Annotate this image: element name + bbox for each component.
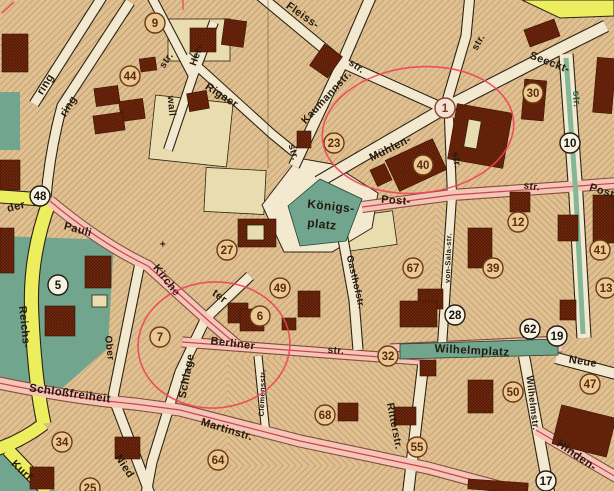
building-footprint	[560, 300, 576, 320]
map-number-marker: 50	[503, 382, 523, 402]
open-block	[204, 167, 266, 214]
circle-number: 39	[487, 263, 500, 275]
map-number-marker: 49	[270, 278, 290, 298]
circle-number: 49	[274, 283, 287, 295]
map-number-marker: 23	[324, 133, 344, 153]
building-footprint	[85, 256, 111, 288]
map-number-marker: 7	[150, 327, 170, 347]
map-number-marker: 27	[217, 240, 237, 260]
map-number-marker: 32	[378, 346, 398, 366]
circle-number: 25	[84, 483, 97, 491]
building-footprint	[468, 380, 493, 413]
building-courtyard	[92, 295, 107, 307]
circle-number: 64	[212, 455, 225, 467]
circle-number: 50	[507, 387, 520, 399]
circle-number: 32	[382, 351, 395, 363]
circle-number: 40	[417, 160, 430, 172]
circle-number: 19	[551, 331, 564, 343]
map-number-marker: 9	[145, 13, 165, 33]
building-footprint	[2, 34, 28, 72]
circle-number: 1	[442, 103, 449, 115]
map-viewport: ringringstr.Her-wallRigaerFleiss-str.Kau…	[0, 0, 614, 491]
circle-number: 62	[524, 324, 537, 336]
circle-number: 13	[600, 283, 613, 295]
map-number-marker: 48	[30, 186, 50, 206]
circle-number: 41	[594, 245, 607, 257]
circle-number: 30	[527, 88, 540, 100]
circle-number: 34	[56, 437, 69, 449]
map-number-marker: 40	[413, 155, 433, 175]
street-label: str.	[327, 345, 344, 357]
circle-number: 67	[407, 263, 420, 275]
circle-number: 6	[257, 311, 263, 323]
map-number-marker: 47	[580, 374, 600, 394]
building-footprint	[187, 90, 210, 111]
circle-number: 48	[34, 191, 47, 203]
map-number-marker: 30	[523, 83, 543, 103]
circle-number: 47	[584, 379, 597, 391]
street-label: str.	[523, 180, 541, 193]
building-footprint	[221, 19, 246, 48]
map-number-marker: 6	[250, 306, 270, 326]
circle-number: 12	[512, 217, 525, 229]
circle-number: 23	[328, 138, 341, 150]
map-number-marker: 67	[403, 258, 423, 278]
building-footprint	[400, 301, 437, 327]
map-number-marker: 41	[590, 240, 610, 260]
street-label: von-Sala-str.	[443, 233, 454, 284]
map-number-marker: 28	[445, 305, 465, 325]
map-number-marker: 55	[407, 437, 427, 457]
map-number-marker: 5	[48, 275, 68, 295]
map-number-marker: 34	[52, 432, 72, 452]
building-footprint	[338, 403, 358, 421]
circle-number: 68	[319, 410, 332, 422]
map-number-marker: 25	[80, 478, 100, 491]
map-number-marker: 62	[520, 319, 540, 339]
street-label: str.	[570, 90, 582, 107]
building-footprint	[298, 291, 320, 317]
building-footprint	[94, 85, 120, 106]
building-footprint	[93, 112, 125, 134]
map-number-marker: 13	[596, 278, 614, 298]
circle-number: 55	[411, 442, 424, 454]
map-number-marker: 19	[547, 326, 567, 346]
street-label: Post-	[381, 194, 411, 208]
building-footprint	[0, 160, 20, 190]
map-number-marker: 1	[435, 98, 455, 118]
building-footprint	[420, 360, 436, 376]
street-label: +	[160, 240, 166, 251]
circle-number: 17	[540, 476, 553, 488]
street-label: wall	[165, 94, 178, 116]
building-footprint	[593, 195, 614, 243]
building-courtyard	[247, 225, 264, 240]
map-number-marker: 64	[208, 450, 228, 470]
map-number-marker: 10	[560, 133, 580, 153]
building-footprint	[139, 57, 157, 72]
circle-number: 28	[449, 310, 462, 322]
map-number-marker: 17	[536, 471, 556, 491]
building-footprint	[30, 467, 54, 489]
circle-number: 44	[124, 71, 137, 83]
building-footprint	[45, 306, 75, 336]
circle-number: 27	[221, 245, 234, 257]
map-number-marker: 39	[483, 258, 503, 278]
building-footprint	[297, 131, 311, 148]
map-number-marker: 12	[508, 212, 528, 232]
building-footprint	[510, 192, 530, 212]
circle-number: 7	[157, 332, 163, 344]
building-footprint	[0, 228, 14, 273]
map-number-marker: 44	[120, 66, 140, 86]
map-number-marker: 68	[315, 405, 335, 425]
circle-number: 10	[564, 138, 577, 150]
building-footprint	[558, 215, 578, 241]
park-area	[0, 92, 20, 150]
historical-city-map: ringringstr.Her-wallRigaerFleiss-str.Kau…	[0, 0, 614, 491]
circle-number: 5	[55, 280, 62, 292]
circle-number: 9	[152, 18, 158, 30]
